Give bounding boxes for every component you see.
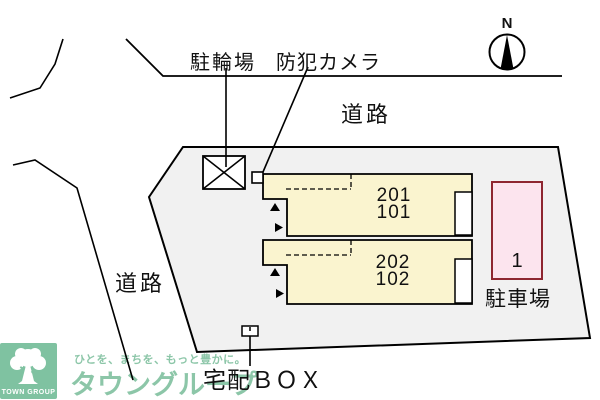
delivery-box-label: 宅配ＢＯＸ [203,361,323,395]
bicycle-parking-label: 駐輪場 [190,46,256,75]
building-a-unit-label: 201 101 [363,187,425,221]
delivery-box-marker [242,326,258,336]
security-camera-label: 防犯カメラ [276,46,381,75]
security-camera-marker [252,172,263,183]
road-left-label: 道路 [115,266,165,298]
building-b-stairwell [455,259,472,303]
site-plan-page: TOWN GROUP ひとを、まちを、もっと豊かに。 タウングループ [0,0,600,400]
building-b-unit-label: 202 102 [362,254,424,288]
road-line-upper-left [10,39,63,98]
road-top-label: 道路 [341,97,391,129]
north-label: N [497,15,517,32]
building-a-stairwell [455,192,472,235]
parking-area-label: 駐車場 [485,283,551,313]
north-compass-icon [490,35,525,70]
building-a-unit-101: 101 [363,204,425,221]
building-b-unit-102: 102 [362,271,424,288]
bicycle-parking-symbol [203,156,245,189]
parking-space-number: 1 [506,250,528,273]
